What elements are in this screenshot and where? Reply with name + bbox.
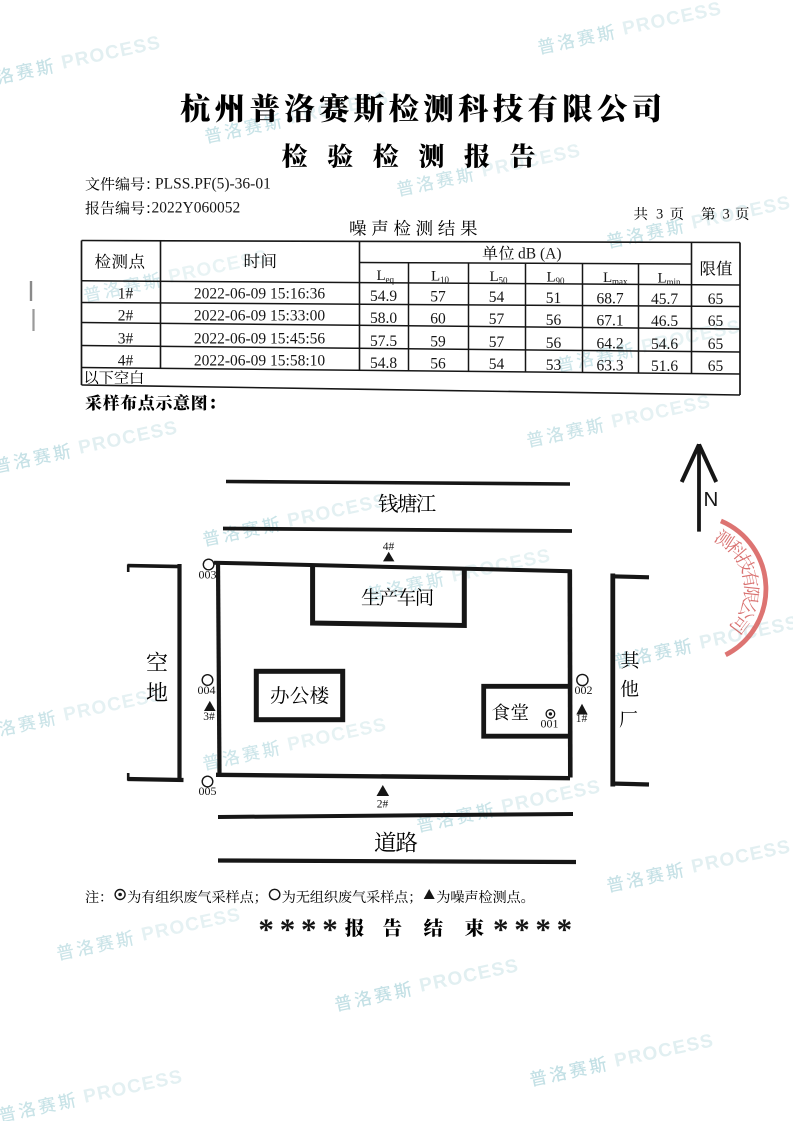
svg-text:L: L <box>658 271 667 287</box>
svg-text:4#: 4# <box>383 541 395 553</box>
svg-text:005: 005 <box>199 784 217 798</box>
svg-text:PLSS.PF(5)-36-01: PLSS.PF(5)-36-01 <box>155 176 271 193</box>
svg-text:54: 54 <box>489 289 505 306</box>
svg-text:*: * <box>301 912 317 947</box>
svg-text:dB (A): dB (A) <box>518 246 561 263</box>
svg-text:3#: 3# <box>203 711 215 723</box>
svg-text:*: * <box>557 912 573 947</box>
svg-text:2022-06-09 15:33:00: 2022-06-09 15:33:00 <box>194 308 326 325</box>
svg-text:57: 57 <box>430 289 446 306</box>
svg-text:67.1: 67.1 <box>596 312 623 329</box>
svg-text:L: L <box>547 270 556 286</box>
svg-text:*: * <box>514 912 530 947</box>
svg-text:1#: 1# <box>576 713 588 725</box>
svg-text:L: L <box>377 268 386 284</box>
svg-text:58.0: 58.0 <box>370 310 397 327</box>
svg-text:65: 65 <box>708 336 724 353</box>
svg-text:53: 53 <box>546 357 562 374</box>
svg-text:54.8: 54.8 <box>370 355 397 372</box>
svg-text:2022-06-09 15:58:10: 2022-06-09 15:58:10 <box>194 353 326 370</box>
svg-text:63.3: 63.3 <box>596 357 623 374</box>
svg-text:*: * <box>280 912 296 947</box>
svg-text:001: 001 <box>541 717 559 731</box>
svg-text:56: 56 <box>430 356 446 373</box>
svg-text:64.2: 64.2 <box>596 335 623 352</box>
svg-text:min: min <box>667 277 682 287</box>
svg-text:004: 004 <box>198 683 216 697</box>
svg-text:56: 56 <box>546 312 562 329</box>
svg-text:2#: 2# <box>118 308 134 325</box>
svg-text:3#: 3# <box>118 331 134 348</box>
svg-text:57.5: 57.5 <box>370 333 397 350</box>
svg-text:*: * <box>322 912 338 947</box>
svg-text:2#: 2# <box>377 799 389 811</box>
svg-text:*: * <box>258 912 274 947</box>
svg-text:57: 57 <box>489 311 505 328</box>
svg-text:*: * <box>493 912 509 947</box>
svg-text:45.7: 45.7 <box>651 291 678 308</box>
svg-text:54.9: 54.9 <box>370 288 397 305</box>
svg-text:*: * <box>535 912 551 947</box>
svg-text:003: 003 <box>199 568 217 582</box>
svg-text:56: 56 <box>546 335 562 352</box>
svg-text:1#: 1# <box>118 286 134 303</box>
svg-text:eq: eq <box>386 275 395 285</box>
svg-text:54: 54 <box>489 356 505 373</box>
svg-text:N: N <box>704 488 719 511</box>
svg-text:L: L <box>603 270 612 286</box>
svg-text:54.6: 54.6 <box>651 336 678 353</box>
svg-text:65: 65 <box>708 291 724 308</box>
svg-text:51.6: 51.6 <box>651 358 678 375</box>
svg-text:46.5: 46.5 <box>651 313 678 330</box>
svg-text:4#: 4# <box>118 353 134 370</box>
svg-text:59: 59 <box>430 334 446 351</box>
svg-text:2022Y060052: 2022Y060052 <box>152 200 241 217</box>
svg-text:57: 57 <box>489 334 505 351</box>
svg-text:10: 10 <box>440 275 450 285</box>
svg-text:L: L <box>490 269 499 285</box>
svg-text:2022-06-09 15:45:56: 2022-06-09 15:45:56 <box>194 331 326 348</box>
svg-text:60: 60 <box>430 311 446 328</box>
svg-text:002: 002 <box>575 683 593 697</box>
svg-text:L: L <box>431 269 440 285</box>
svg-text:68.7: 68.7 <box>596 290 623 307</box>
svg-text:50: 50 <box>499 276 509 286</box>
svg-text:2022-06-09 15:16:36: 2022-06-09 15:16:36 <box>194 286 326 303</box>
svg-text:65: 65 <box>708 358 724 375</box>
svg-text:max: max <box>612 277 628 287</box>
svg-text:51: 51 <box>546 290 562 307</box>
svg-text:3: 3 <box>656 207 663 223</box>
svg-text:65: 65 <box>708 313 724 330</box>
svg-text:3: 3 <box>723 207 730 223</box>
svg-text:90: 90 <box>556 276 566 286</box>
